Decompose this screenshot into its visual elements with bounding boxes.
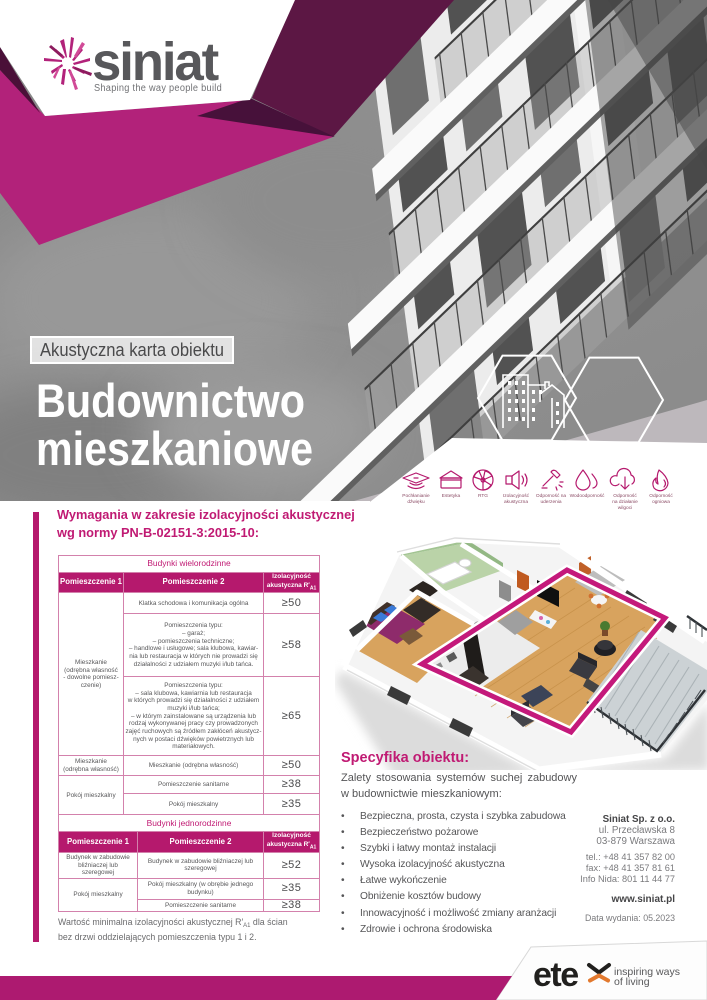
svg-text:ogniowa: ogniowa [652,499,670,505]
svg-text:Budownictwo: Budownictwo [36,374,305,427]
svg-text:Izolacyjność: Izolacyjność [503,493,530,499]
svg-text:akustyczna: akustyczna [504,499,528,505]
svg-text:Shaping the way people build: Shaping the way people build [94,83,222,94]
svg-text:Odporność: Odporność [649,493,673,499]
svg-text:ete: ete [533,956,578,994]
svg-text:Wodoodporność: Wodoodporność [570,493,605,499]
svg-text:Akustyczna karta obiektu: Akustyczna karta obiektu [40,340,224,360]
svg-text:RTG: RTG [478,493,488,499]
svg-text:wilgoci: wilgoci [618,505,632,510]
svg-text:Estetyka: Estetyka [442,493,461,499]
svg-text:Odporność: Odporność [613,493,637,499]
svg-text:of living: of living [614,976,650,988]
svg-text:uderzenia: uderzenia [540,499,561,505]
svg-text:Pochłanianie: Pochłanianie [402,493,430,499]
svg-text:Odporność na: Odporność na [536,493,566,499]
svg-text:na działanie: na działanie [612,499,638,505]
svg-text:dźwięku: dźwięku [407,499,425,505]
